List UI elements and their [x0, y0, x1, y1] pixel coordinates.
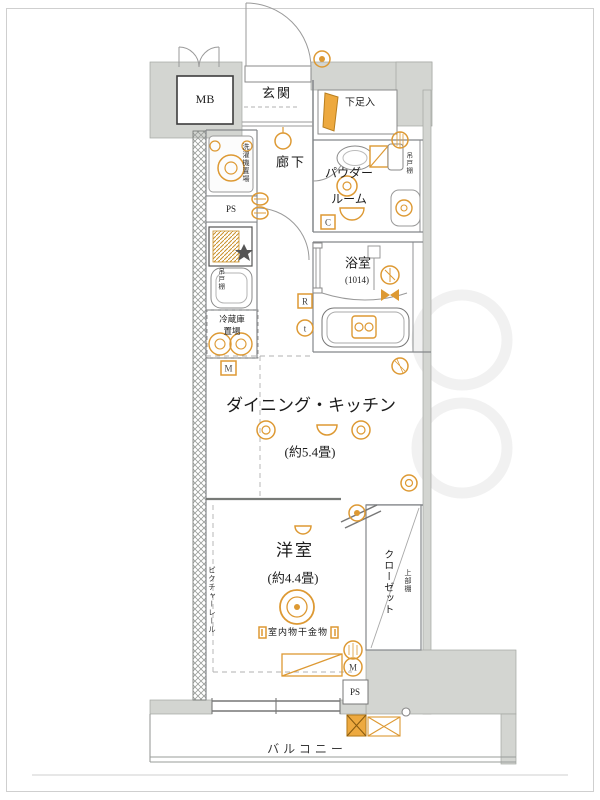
hall-light-icon [275, 133, 291, 149]
label-indoor-drying: 室内物干金物 [268, 627, 328, 637]
label-dining-kitchen-size: (約5.4畳) [285, 446, 336, 461]
entrance-door-slab [245, 66, 311, 82]
label-ps-top: PS [226, 204, 236, 214]
wall-bottom-left [150, 700, 212, 714]
half-dome-icon-powder [340, 208, 364, 220]
wall-bottom-right [366, 650, 516, 714]
label-picture-rail: ピクチャーレール [207, 566, 216, 634]
label-hanging-cupboard-kitchen: 吊戸棚 [216, 268, 223, 291]
label-dining-kitchen: ダイニング・キッチン [226, 396, 396, 416]
label-ps-bottom: PS [350, 687, 360, 697]
label-powder-1: パウダー [325, 167, 373, 181]
label-shoe-box: 下足入 [345, 97, 375, 109]
label-powder-2: ルーム [331, 193, 367, 207]
drain-circle-icon [402, 708, 410, 716]
r-letter: R [302, 297, 308, 307]
label-washer-space: 洗濯機置場 [242, 143, 250, 183]
label-hanging-cupboard-powder: 吊戸棚 [404, 152, 411, 175]
label-western-room-size: (約4.4畳) [268, 572, 319, 587]
label-closet: クローゼット [381, 549, 393, 615]
label-mb: MB [196, 93, 215, 107]
stove-icon [213, 231, 239, 262]
faucet-bowtie-icon [381, 289, 390, 301]
balcony-fence [150, 757, 516, 762]
c-letter: C [325, 218, 331, 228]
entrance-door-swing [246, 3, 311, 68]
label-balcony: バルコニー [267, 743, 347, 757]
drying-bracket-left-icon [259, 627, 266, 638]
dk-door-swing [257, 208, 309, 260]
wall-right [423, 90, 431, 714]
t-letter: t [304, 324, 307, 334]
meter-letter: M [224, 364, 232, 374]
hatched-boundary-wall [193, 131, 206, 700]
label-bathroom-size: (1014) [345, 275, 369, 285]
label-western-room: 洋室 [276, 541, 314, 561]
m-circle-letter: M [349, 663, 357, 673]
label-upper-shelf: 上部棚 [404, 569, 412, 593]
half-dome-icon-bedroom [295, 526, 311, 534]
label-hallway: 廊下 [276, 156, 306, 171]
half-dome-icon-dk [317, 425, 337, 435]
label-bathroom: 浴室 [345, 257, 371, 272]
bath-door [316, 246, 320, 290]
downlight-icon-2 [352, 421, 370, 439]
label-fridge-2: 置場 [223, 327, 240, 337]
tub-faucet-icon [352, 316, 376, 338]
outlet-icon-dk [401, 475, 417, 491]
label-fridge-1: 冷蔵庫 [219, 315, 245, 325]
label-genkan: 玄関 [262, 87, 292, 102]
floor-plan: M C R t M MB 玄関 下足入 廊下 パウダー ルーム 浴室 (1014… [0, 0, 600, 800]
drying-bracket-right-icon [331, 627, 338, 638]
